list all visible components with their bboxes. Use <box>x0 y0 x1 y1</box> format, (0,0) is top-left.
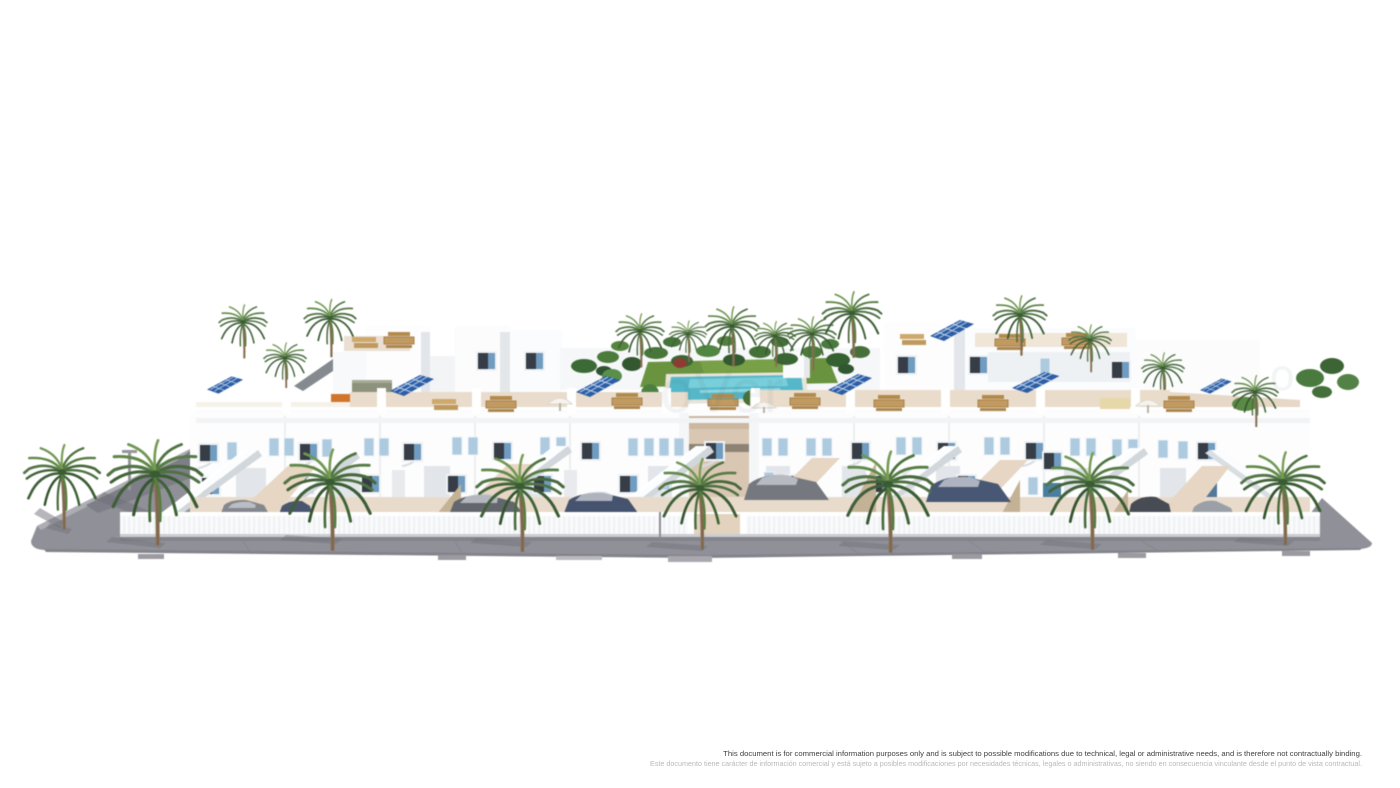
svg-text:o: o <box>1270 351 1294 400</box>
svg-text:oVer: oVer <box>660 358 783 425</box>
